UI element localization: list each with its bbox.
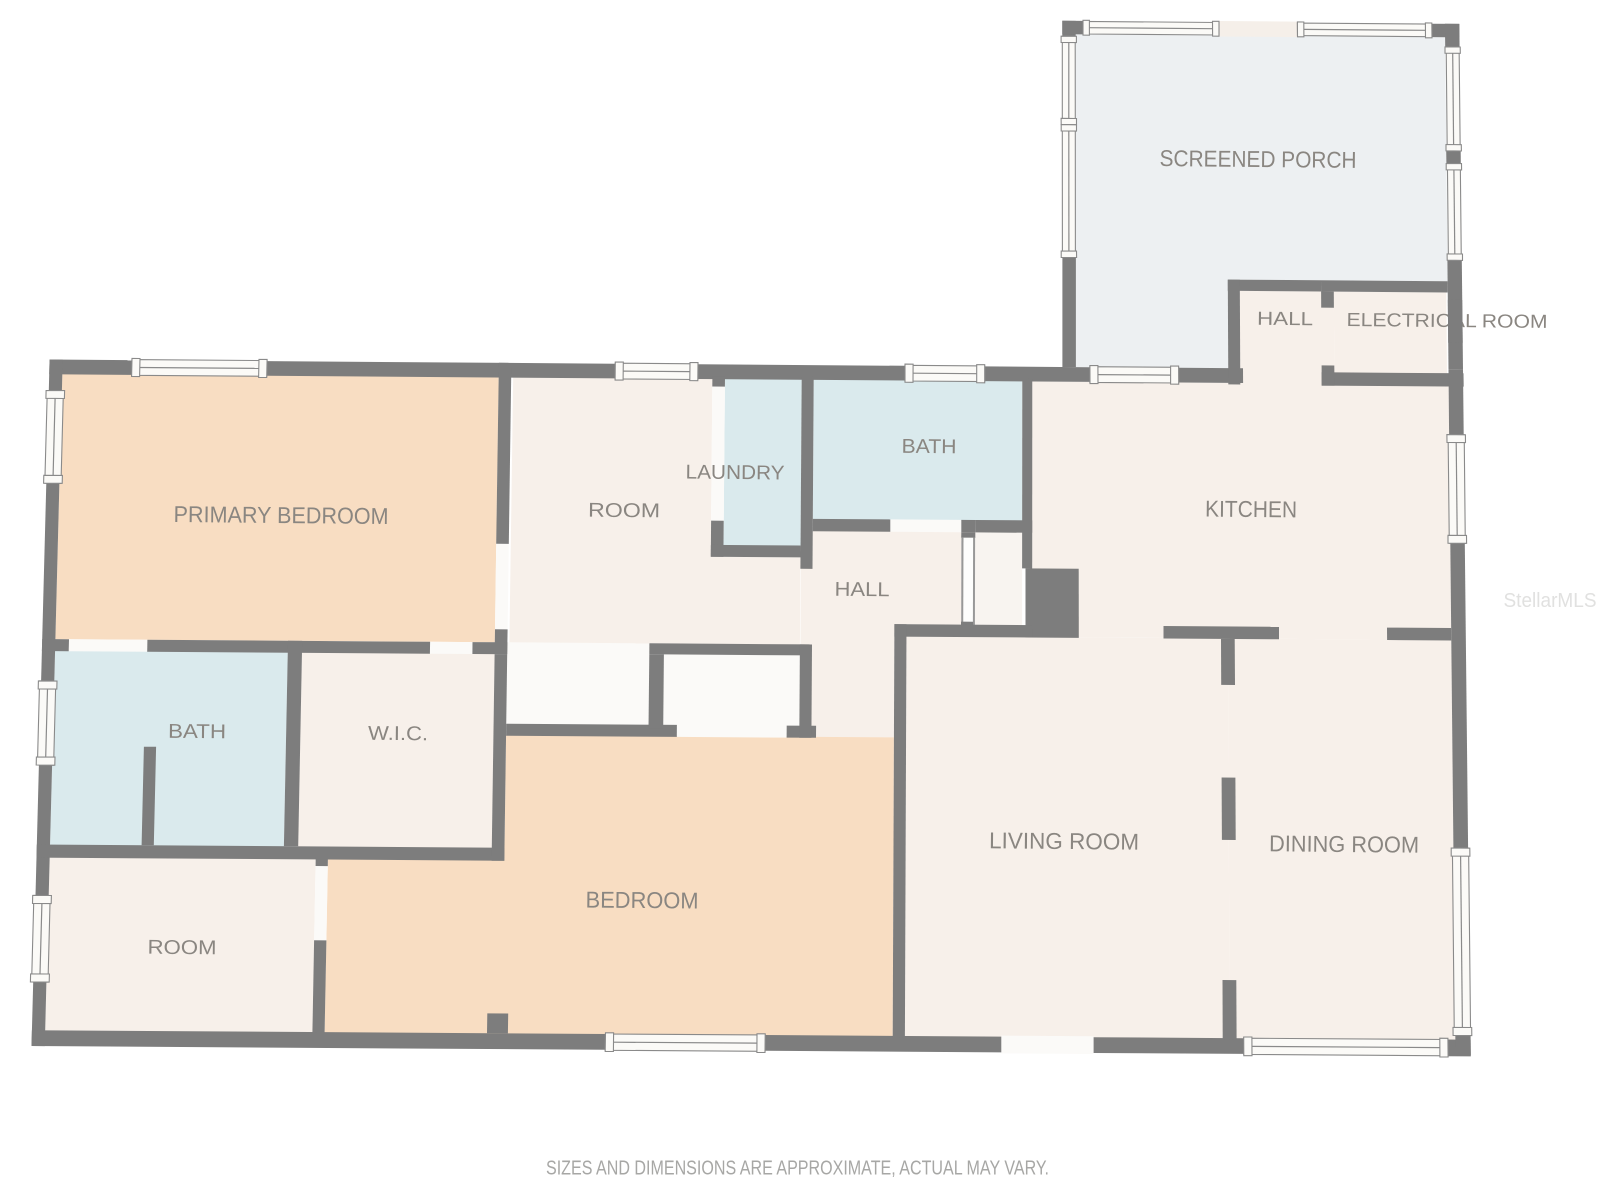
svg-text:DINING ROOM: DINING ROOM — [1269, 830, 1419, 857]
svg-text:StellarMLS: StellarMLS — [1504, 590, 1597, 612]
svg-text:PRIMARY BEDROOM: PRIMARY BEDROOM — [173, 501, 388, 529]
svg-text:KITCHEN: KITCHEN — [1205, 496, 1297, 523]
svg-text:LAUNDRY: LAUNDRY — [685, 462, 784, 485]
svg-text:BEDROOM: BEDROOM — [585, 886, 698, 913]
svg-text:BATH: BATH — [168, 721, 226, 744]
svg-text:W.I.C.: W.I.C. — [368, 723, 428, 746]
svg-text:HALL: HALL — [1257, 309, 1313, 331]
svg-text:SCREENED PORCH: SCREENED PORCH — [1159, 145, 1356, 173]
svg-text:HALL: HALL — [834, 579, 889, 602]
svg-text:ELECTRICAL ROOM: ELECTRICAL ROOM — [1346, 310, 1547, 333]
svg-text:ROOM: ROOM — [147, 937, 216, 960]
svg-text:BATH: BATH — [901, 436, 956, 459]
svg-text:LIVING ROOM: LIVING ROOM — [989, 827, 1139, 854]
svg-text:ROOM: ROOM — [588, 500, 660, 523]
svg-text:SIZES AND DIMENSIONS ARE APPRO: SIZES AND DIMENSIONS ARE APPROXIMATE, AC… — [546, 1158, 1049, 1180]
